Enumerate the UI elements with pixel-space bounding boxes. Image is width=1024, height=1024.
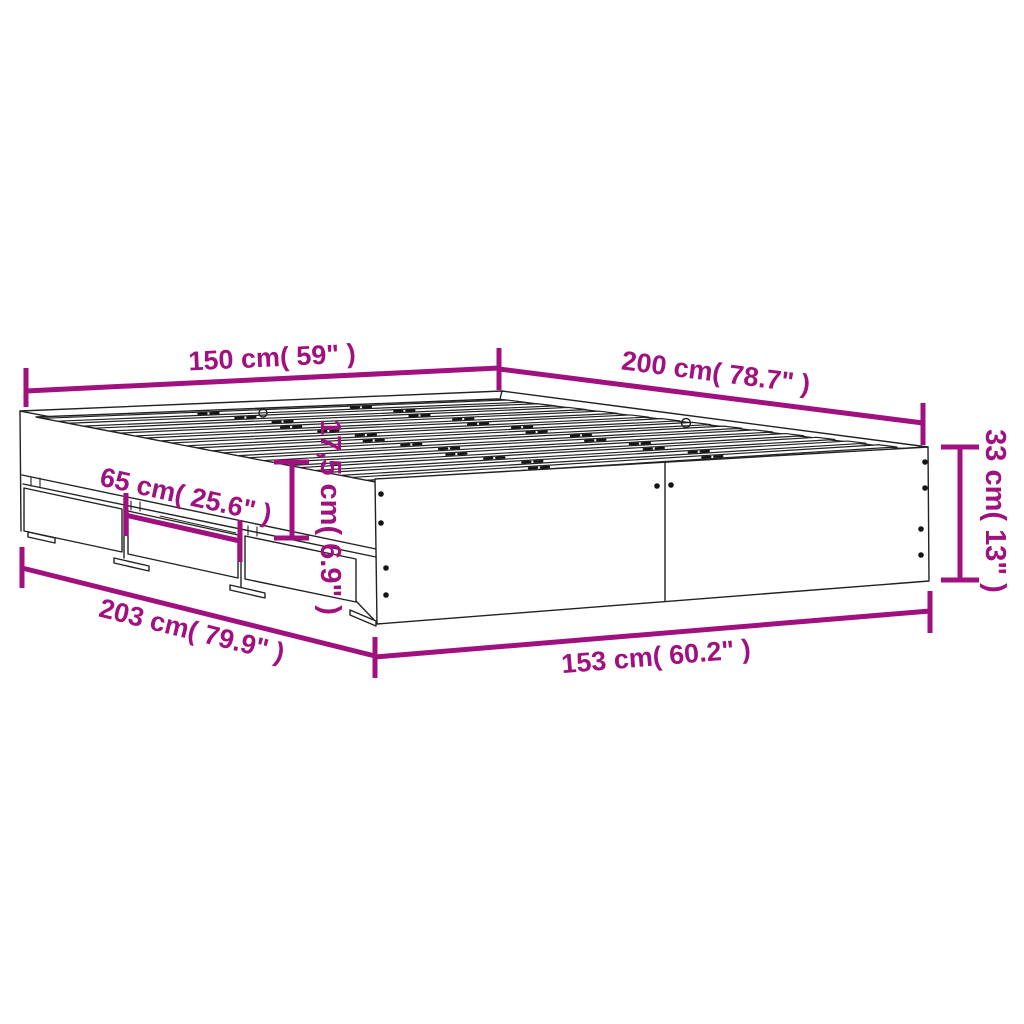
- bed-front-face: [375, 447, 929, 624]
- side-left-edge: [20, 411, 21, 531]
- drawer-front-1: [24, 488, 122, 552]
- dim-label-bottom-length: 203 cm( 79.9" ): [96, 593, 288, 668]
- bed-dimension-diagram: 150 cm( 59" ) 200 cm( 78.7" ) 65 cm( 25.…: [0, 0, 1024, 1024]
- diagram-canvas: 150 cm( 59" ) 200 cm( 78.7" ) 65 cm( 25.…: [0, 0, 1024, 1024]
- front-panel: [375, 447, 929, 624]
- dim-label-frame-height: 33 cm( 13" ): [979, 429, 1011, 593]
- dim-label-top-length: 200 cm( 78.7" ): [620, 346, 812, 400]
- dim-label-drawer-front-height: 17,5 cm( 6.9" ): [314, 419, 346, 615]
- dim-label-top-width: 150 cm( 59" ): [188, 338, 357, 376]
